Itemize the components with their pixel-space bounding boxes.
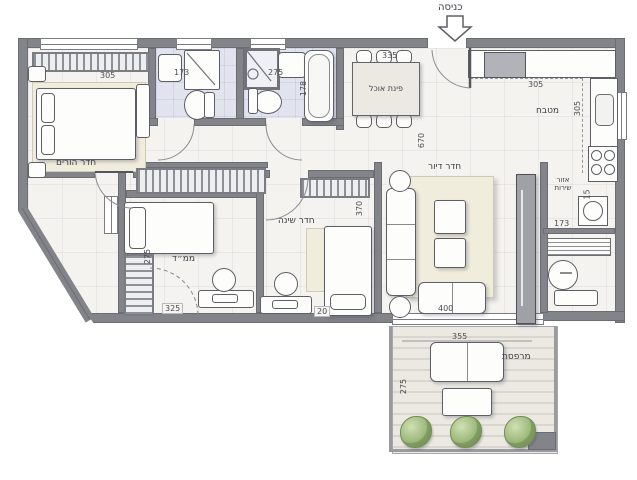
bath-left-window (176, 38, 212, 50)
parents-wardrobe (32, 52, 150, 72)
dim-dining-width: 335 (382, 51, 397, 60)
coffee-table-2 (434, 238, 466, 268)
dim-mamad-depth: 275 (143, 249, 152, 264)
dim-bath-left-width: 173 (174, 68, 189, 77)
bedroom-pillow (330, 294, 366, 310)
wc-round-sink (548, 260, 578, 290)
side-table-top (389, 170, 411, 192)
fridge (484, 52, 526, 78)
coffee-table-1 (434, 200, 466, 234)
wall-bottom-right (543, 311, 625, 321)
entrance-opening (428, 38, 466, 48)
stove-burner-1 (591, 150, 602, 161)
service-shutter (547, 238, 611, 256)
bathtub-inner (308, 54, 330, 118)
stove-burner-3 (591, 164, 602, 175)
washing-machine-drum (583, 201, 603, 221)
dim-bedroom-depth: 370 (355, 201, 364, 216)
dim-balcony-width: 355 (452, 332, 467, 341)
sofa-main (386, 188, 416, 296)
tv-cabinet (516, 174, 536, 324)
balcony-sofa (430, 342, 504, 382)
dim-service-niche: 15 (583, 189, 592, 199)
dining-table: פינת אוכל (352, 62, 420, 116)
wall-bath-bottom-2 (194, 118, 266, 126)
parents-pillow-1 (41, 93, 55, 123)
bath-left-toilet-tank (204, 92, 215, 118)
parents-nightstand-1 (28, 66, 46, 82)
parents-window (40, 38, 138, 50)
mamad-label: ממ״ד (172, 254, 195, 264)
dim-bath-right-width: 275 (268, 68, 283, 77)
stove-burner-2 (604, 150, 615, 161)
service-label: אזור שירות (546, 176, 580, 192)
dim-kitchen-width: 305 (528, 80, 543, 89)
wall-bedroom-living (374, 162, 382, 313)
wall-service-bottom (543, 228, 615, 234)
service-label-line1: אזור (557, 176, 570, 184)
wall-top-right (466, 38, 625, 48)
corridor-closet (136, 168, 266, 194)
stove-burner-4 (604, 164, 615, 175)
parents-dresser (136, 84, 150, 138)
dining-chair-5 (376, 114, 392, 128)
living-label: חדר דיור (428, 162, 461, 172)
wall-mamad-bedroom (256, 190, 264, 313)
side-table-bottom (389, 296, 411, 318)
service-label-line2: שירות (555, 184, 572, 192)
bedroom-wardrobe (300, 178, 370, 198)
bedroom-desk-drawer (272, 300, 298, 309)
dim-bathtub-length: 178 (299, 81, 308, 96)
entrance-label: כניסה (438, 3, 463, 13)
balcony-label: מרפסת (502, 352, 531, 362)
dim-balcony-depth: 275 (399, 379, 408, 394)
floor-plan: פינת אוכל (0, 0, 637, 480)
mamad-blast-window (104, 196, 118, 234)
mamad-desk-drawer (212, 294, 238, 303)
bath-left-shower (184, 50, 220, 90)
wall-between-baths (236, 48, 244, 124)
dim-bedroom-gap: 20 (314, 306, 330, 317)
dining-chair-4 (356, 114, 372, 128)
kitchen-sink (595, 94, 614, 126)
dim-service-width: 173 (554, 219, 569, 228)
mamad-chair (212, 268, 236, 292)
bedroom-chair (274, 272, 298, 296)
kitchen-dashed-guide (470, 78, 583, 173)
balcony-rail-left (389, 326, 392, 452)
dim-living-length: 670 (417, 133, 426, 148)
dim-mamad-width: 325 (162, 303, 183, 314)
balcony-table (442, 388, 492, 416)
dining-chair-6 (396, 114, 412, 128)
parents-pillow-2 (41, 125, 55, 155)
wall-left (18, 38, 28, 210)
bath-right-toilet-tank (248, 88, 258, 114)
living-rug (406, 176, 494, 298)
wc-counter (554, 290, 598, 306)
bedroom-label: חדר שינה (278, 216, 315, 226)
wc-sink-faucet (560, 272, 572, 274)
dim-kitchen-depth: 305 (573, 101, 582, 116)
dining-label: פינת אוכל (369, 84, 403, 94)
dim-parents-width: 305 (100, 71, 115, 80)
parents-nightstand-2 (28, 162, 46, 178)
dim-living-width: 400 (438, 304, 453, 313)
parents-label: חדר הורים (56, 158, 96, 168)
bath-right-toilet-bowl (254, 90, 282, 114)
kitchen-label: מטבח (536, 106, 559, 116)
wall-bedroom-top-2 (308, 170, 374, 178)
mamad-pillow (129, 207, 146, 249)
tv-cabinet-slit (521, 190, 523, 306)
